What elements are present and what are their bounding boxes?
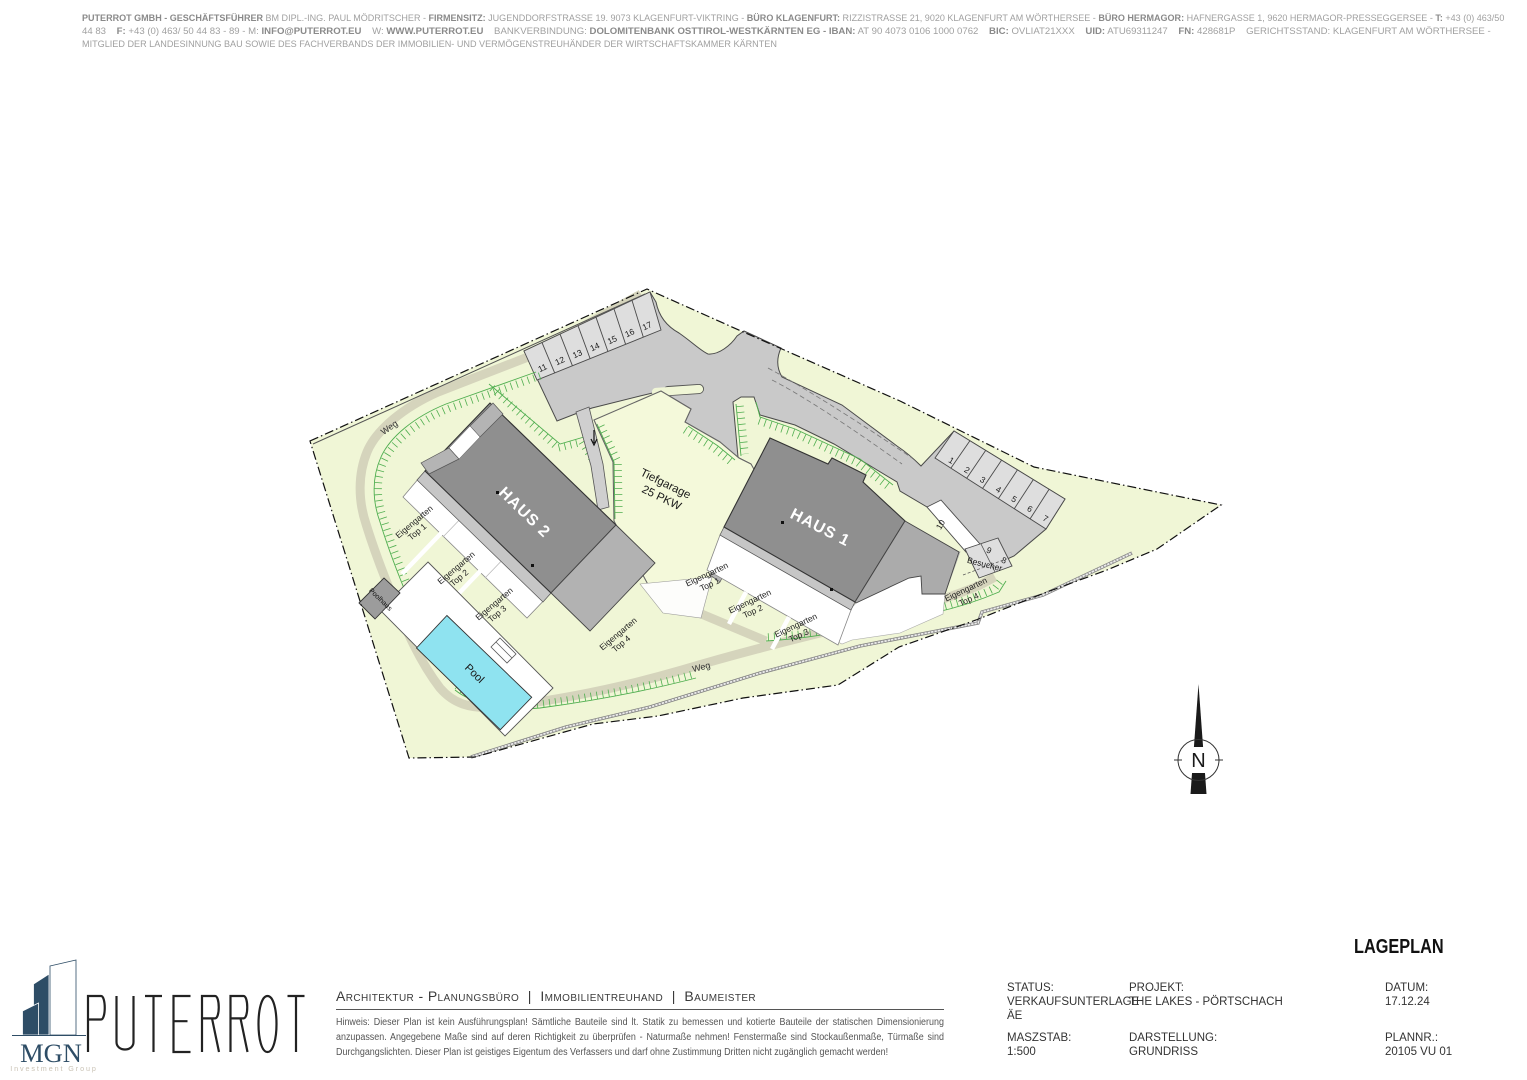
svg-text:N: N [1191,750,1205,772]
svg-text:Investment Group: Investment Group [10,1064,98,1073]
